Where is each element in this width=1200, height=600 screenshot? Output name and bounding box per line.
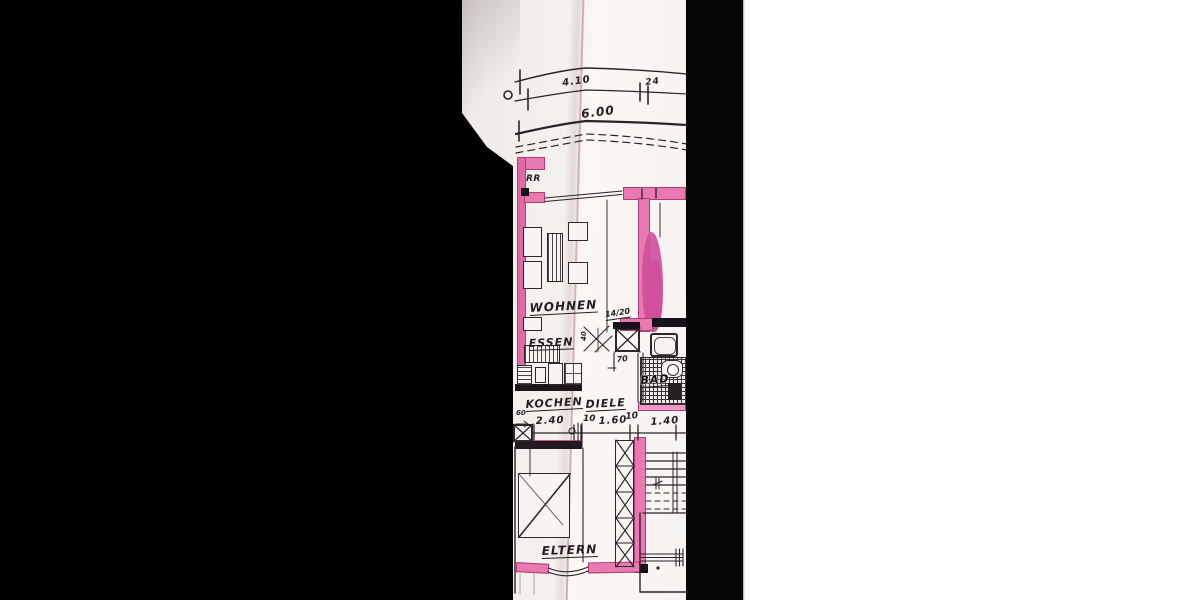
dim-row-240: 2.40 [536,416,565,427]
room-label-eltern: ELTERN [542,543,598,559]
rr-label: RR [526,175,541,184]
dim-row-10b: 10 [625,412,638,422]
scan-white-margin [745,0,1200,600]
dim-label-24: 24 [645,78,660,88]
black-mask-band [686,0,743,600]
staircase [643,452,686,513]
dim-row-140: 1.40 [650,416,679,428]
lower-right-room [640,513,686,592]
floor-plan-paper: RR 4.10 24 6.00 WOHNEN ESSEN KOCHEN DIEL… [460,0,686,600]
room-label-essen: ESSEN [529,336,574,351]
room-label-bad: BAD [640,373,670,388]
dim-label-door-clear: 40 [581,331,588,341]
eltern-room-lines [515,447,588,594]
dim-label-70: 70 [616,355,628,364]
room-label-diele: DIELE [585,397,626,412]
shaft-x-braces [616,440,634,567]
dim-row-160: 1.60 [598,416,627,427]
dim-label-60: 60 [516,410,526,417]
scanned-floor-plan: RR 4.10 24 6.00 WOHNEN ESSEN KOCHEN DIEL… [0,0,1200,600]
dim-row-10a: 10 [583,415,596,424]
